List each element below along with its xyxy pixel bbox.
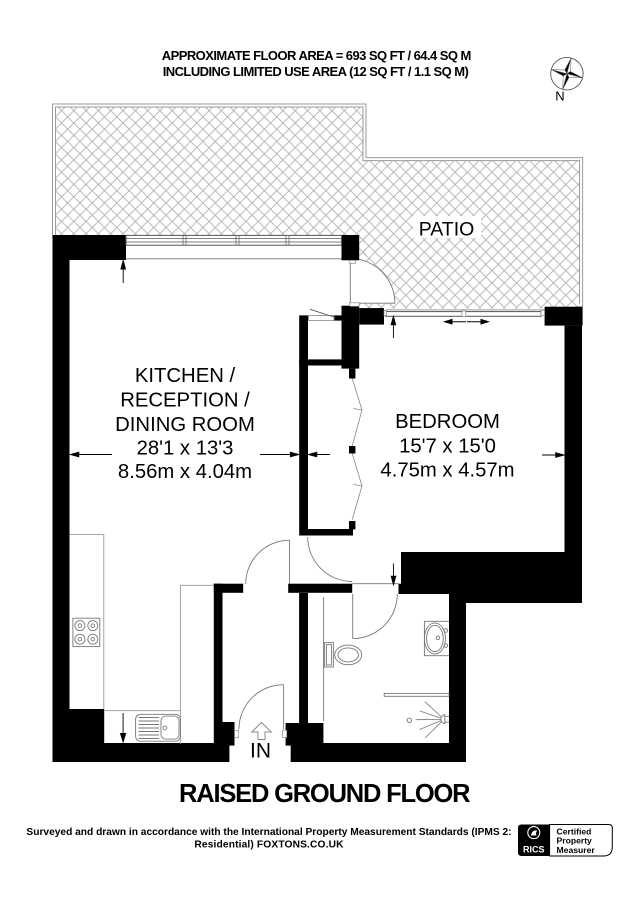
svg-text:28'1 x 13'3: 28'1 x 13'3 [137,438,234,460]
svg-text:Residential) FOXTONS.CO.UK: Residential) FOXTONS.CO.UK [194,839,344,850]
svg-text:DINING ROOM: DINING ROOM [115,414,255,436]
svg-text:Measurer: Measurer [557,845,596,855]
svg-text:Surveyed and drawn in accordan: Surveyed and drawn in accordance with th… [26,827,511,838]
svg-text:15'7 x 15'0: 15'7 x 15'0 [399,435,496,457]
svg-text:8.56m x 4.04m: 8.56m x 4.04m [118,461,252,483]
svg-text:KITCHEN /: KITCHEN / [135,365,236,387]
svg-text:BEDROOM: BEDROOM [395,411,500,433]
svg-text:RAISED GROUND FLOOR: RAISED GROUND FLOOR [179,780,470,808]
svg-text:N: N [555,89,564,104]
svg-text:APPROXIMATE FLOOR AREA = 693 S: APPROXIMATE FLOOR AREA = 693 SQ FT / 64.… [162,48,471,63]
svg-text:RICS: RICS [523,845,545,855]
svg-text:RECEPTION /: RECEPTION / [120,390,250,412]
svg-text:PATIO: PATIO [419,218,475,240]
svg-text:INCLUDING LIMITED USE AREA (12: INCLUDING LIMITED USE AREA (12 SQ FT / 1… [163,64,469,79]
svg-text:4.75m x 4.57m: 4.75m x 4.57m [380,460,514,482]
svg-text:IN: IN [250,740,271,763]
